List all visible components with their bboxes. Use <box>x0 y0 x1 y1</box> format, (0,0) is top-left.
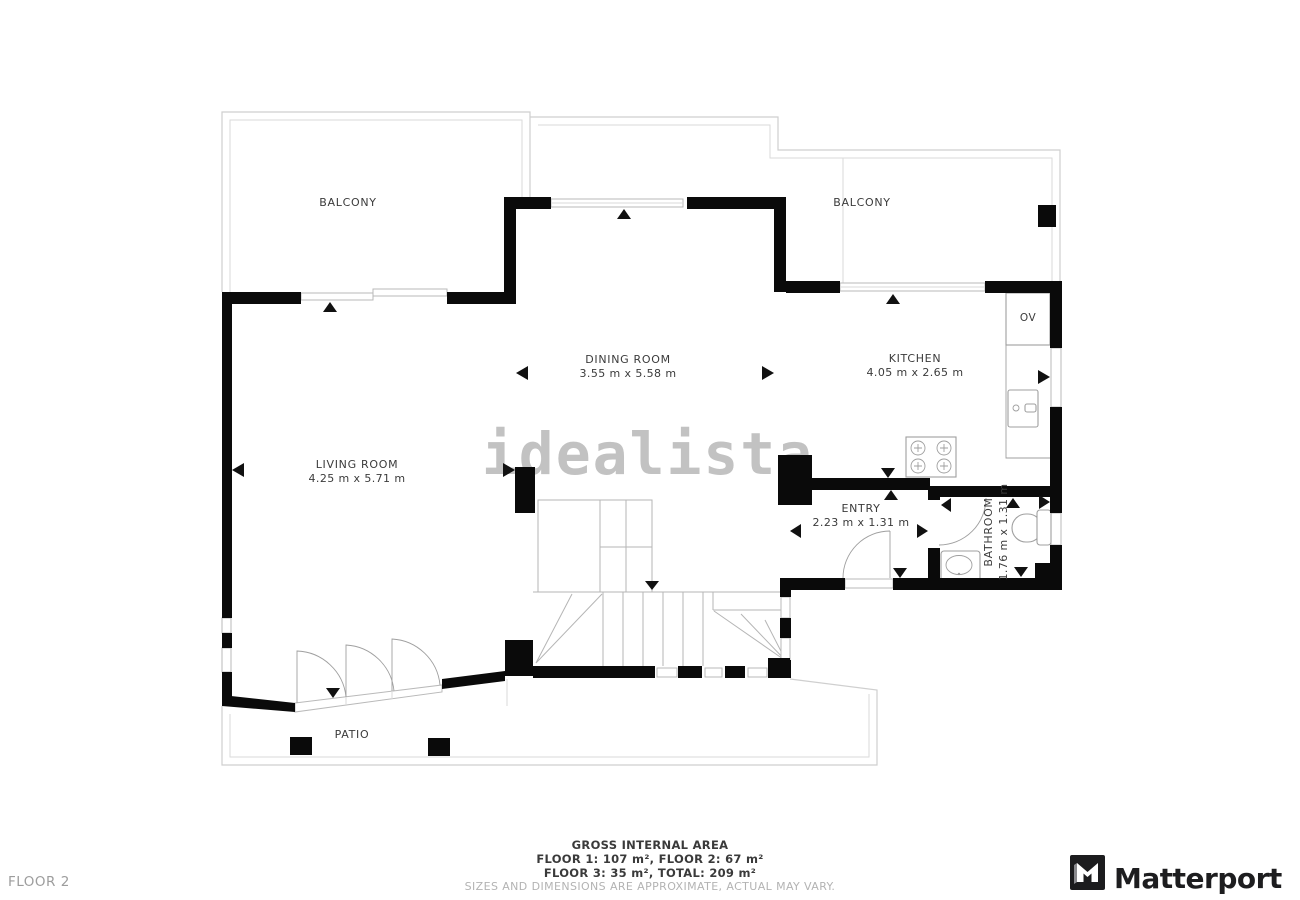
room-dims-bathroom: 1.76 m x 1.31 m <box>997 484 1010 581</box>
area-line-1: FLOOR 1: 107 m², FLOOR 2: 67 m² <box>536 852 763 866</box>
staircase <box>533 500 790 666</box>
room-label-bathroom: BATHROOM <box>982 497 995 566</box>
room-label-living: LIVING ROOM <box>316 458 399 471</box>
room-label-balcony-left: BALCONY <box>319 196 376 209</box>
matterport-wordmark: Matterport <box>1114 862 1282 895</box>
room-label-patio: PATIO <box>335 728 370 741</box>
room-dims-dining: 3.55 m x 5.58 m <box>580 367 677 380</box>
room-label-entry: ENTRY <box>841 502 880 515</box>
disclaimer: SIZES AND DIMENSIONS ARE APPROXIMATE, AC… <box>465 880 836 893</box>
matterport-icon <box>1070 855 1105 890</box>
room-dims-entry: 2.23 m x 1.31 m <box>813 516 910 529</box>
toilet <box>1012 510 1051 545</box>
matterport-logo: Matterport <box>1070 855 1282 895</box>
floor-number-label: FLOOR 2 <box>8 874 70 890</box>
area-line-2: FLOOR 3: 35 m², TOTAL: 209 m² <box>544 866 756 880</box>
kitchen-sink <box>1008 390 1038 427</box>
room-label-balcony-right: BALCONY <box>833 196 890 209</box>
room-label-kitchen: KITCHEN <box>889 352 942 365</box>
room-label-dining: DINING ROOM <box>585 353 671 366</box>
floor-plan-page: idealista <box>0 0 1300 900</box>
floor-plan-canvas: idealista <box>0 0 1300 900</box>
bathroom-sink <box>941 551 980 581</box>
room-dims-kitchen: 4.05 m x 2.65 m <box>867 366 964 379</box>
entry-door-arc <box>843 531 890 578</box>
gross-area-title: GROSS INTERNAL AREA <box>572 838 729 852</box>
room-dims-living: 4.25 m x 5.71 m <box>309 472 406 485</box>
oven-closet-label: OV <box>1020 312 1037 324</box>
stove <box>906 437 956 477</box>
footer: GROSS INTERNAL AREA FLOOR 1: 107 m², FLO… <box>8 838 835 893</box>
